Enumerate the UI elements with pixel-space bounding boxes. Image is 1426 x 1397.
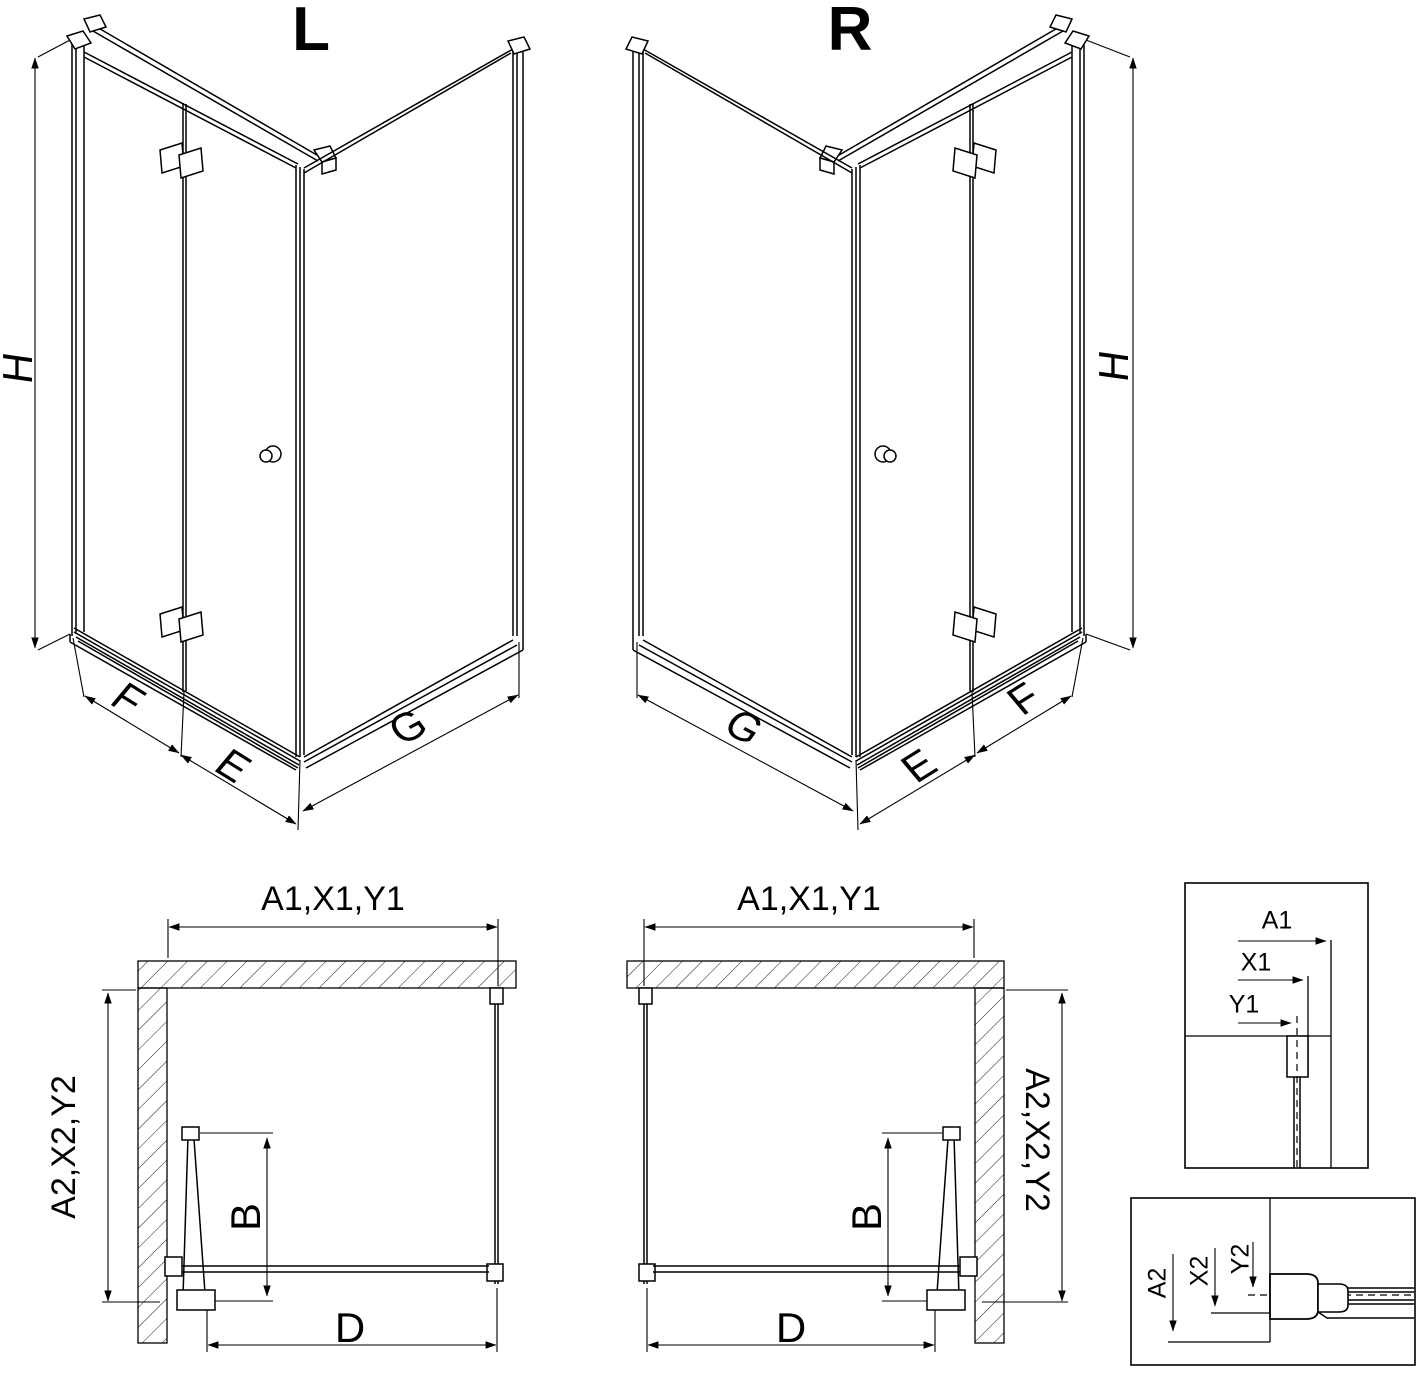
plan-right-structure	[639, 988, 977, 1310]
plan-left-d-label: D	[335, 1307, 365, 1349]
plan-left-structure	[165, 988, 503, 1310]
detail-bottom-a2-label: A2	[1146, 1268, 1171, 1299]
detail-top-a1-label: A1	[1262, 909, 1293, 934]
variant-label-right: R	[828, 0, 873, 61]
plan-right-b-label: B	[846, 1203, 888, 1231]
detail-top-y1-label: Y1	[1229, 993, 1260, 1018]
plan-view-right	[627, 919, 1068, 1352]
dim-label-height-right: H	[1093, 348, 1135, 384]
plan-right-d-label: D	[776, 1307, 806, 1349]
wall-side-right-plan	[975, 988, 1004, 1343]
wall-side-left-plan	[138, 988, 167, 1343]
iso-view-right	[626, 15, 1133, 830]
technical-drawing-sheet: L R H F E G H F E G A1,X1,Y1 A2,X2,Y2 B …	[0, 0, 1426, 1397]
plan-right-width-label: A1,X1,Y1	[737, 882, 881, 916]
plan-view-left	[102, 919, 516, 1352]
wall-back-right-plan	[627, 961, 1004, 988]
detail-box-bottom	[1131, 1198, 1415, 1365]
plan-left-depth-label: A2,X2,Y2	[47, 1075, 81, 1219]
plan-right-depth-label: A2,X2,Y2	[1020, 1068, 1054, 1212]
detail-bottom-x2-label: X2	[1188, 1256, 1213, 1287]
plan-left-b-label: B	[225, 1203, 267, 1231]
linework-canvas	[0, 0, 1426, 1397]
detail-top-x1-label: X1	[1241, 951, 1272, 976]
variant-label-left: L	[292, 0, 330, 61]
iso-left-structure	[67, 15, 530, 770]
detail-bottom-y2-label: Y2	[1229, 1244, 1254, 1275]
dim-label-height-left: H	[0, 350, 39, 386]
iso-right-structure	[626, 15, 1089, 770]
wall-back-left-plan	[138, 961, 516, 988]
plan-left-width-label: A1,X1,Y1	[261, 882, 405, 916]
iso-right-dimensions	[637, 40, 1133, 830]
